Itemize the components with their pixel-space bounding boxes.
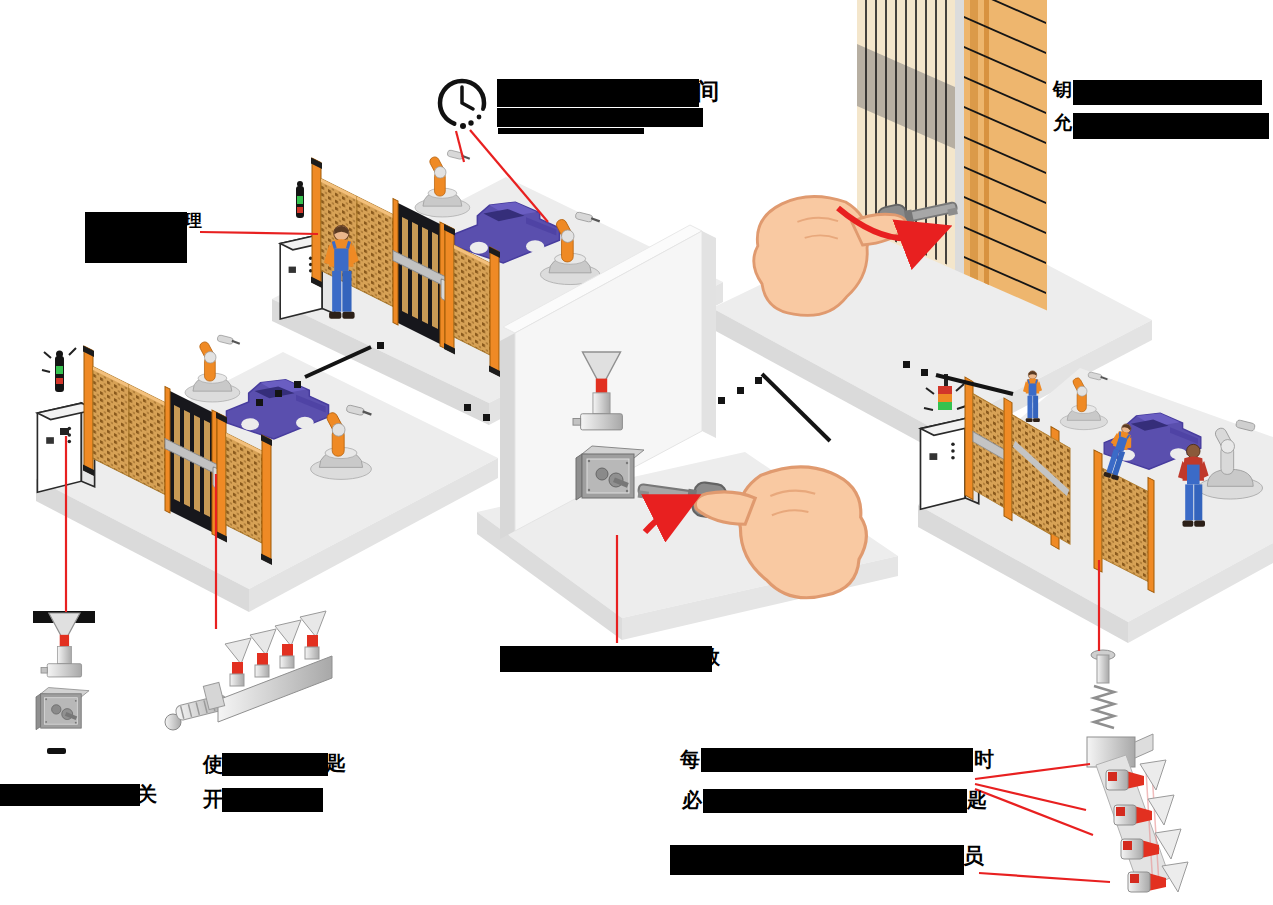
clock-icon bbox=[440, 81, 485, 129]
label-fragment-exchange-note-start: 使 bbox=[203, 754, 223, 774]
label-fragment-wall-note-2: 允 bbox=[1053, 113, 1072, 132]
redaction-bar bbox=[1073, 113, 1269, 139]
redaction-bar bbox=[500, 646, 712, 672]
redaction-bar bbox=[497, 79, 699, 107]
key-safe-box-icon-wall bbox=[576, 446, 644, 500]
label-fragment-clock-note: 间 bbox=[696, 80, 719, 103]
redaction-bar bbox=[0, 784, 140, 806]
redaction-bar bbox=[703, 789, 967, 813]
label-fragment-rack-a-start: 每 bbox=[680, 749, 700, 769]
redaction-bar bbox=[497, 108, 703, 127]
diagram-canvas: 间 钥 允 理 关 使 匙 开 数 每 时 必 匙 员 bbox=[0, 0, 1273, 905]
key-exchange-unit-icon bbox=[165, 611, 332, 730]
redaction-bar bbox=[85, 212, 187, 263]
redaction-bar bbox=[1073, 80, 1262, 105]
label-fragment-rack-a-end: 时 bbox=[974, 749, 994, 769]
redaction-bar bbox=[670, 845, 964, 875]
key-switch-and-safe-icons bbox=[33, 611, 95, 754]
label-fragment-exchange-note-line2: 开 bbox=[203, 789, 223, 809]
redaction-bar bbox=[222, 788, 323, 812]
label-fragment-rack-a2-end: 匙 bbox=[967, 790, 987, 810]
redaction-bar bbox=[498, 128, 644, 134]
key-rack-icon bbox=[1087, 650, 1188, 892]
redaction-bar bbox=[701, 748, 973, 772]
label-fragment-rack-a2-start: 必 bbox=[682, 790, 702, 810]
key-safe-box-icon bbox=[36, 688, 89, 730]
label-fragment-exchange-note-end: 匙 bbox=[326, 753, 346, 773]
label-fragment-wall-note-1: 钥 bbox=[1053, 80, 1072, 99]
label-fragment-cabinet-note: 理 bbox=[185, 212, 202, 229]
robot-cell-right bbox=[918, 368, 1273, 643]
label-fragment-rack-b: 员 bbox=[963, 846, 984, 867]
label-fragment-switch-note: 关 bbox=[137, 784, 157, 804]
redaction-bar bbox=[222, 753, 328, 776]
